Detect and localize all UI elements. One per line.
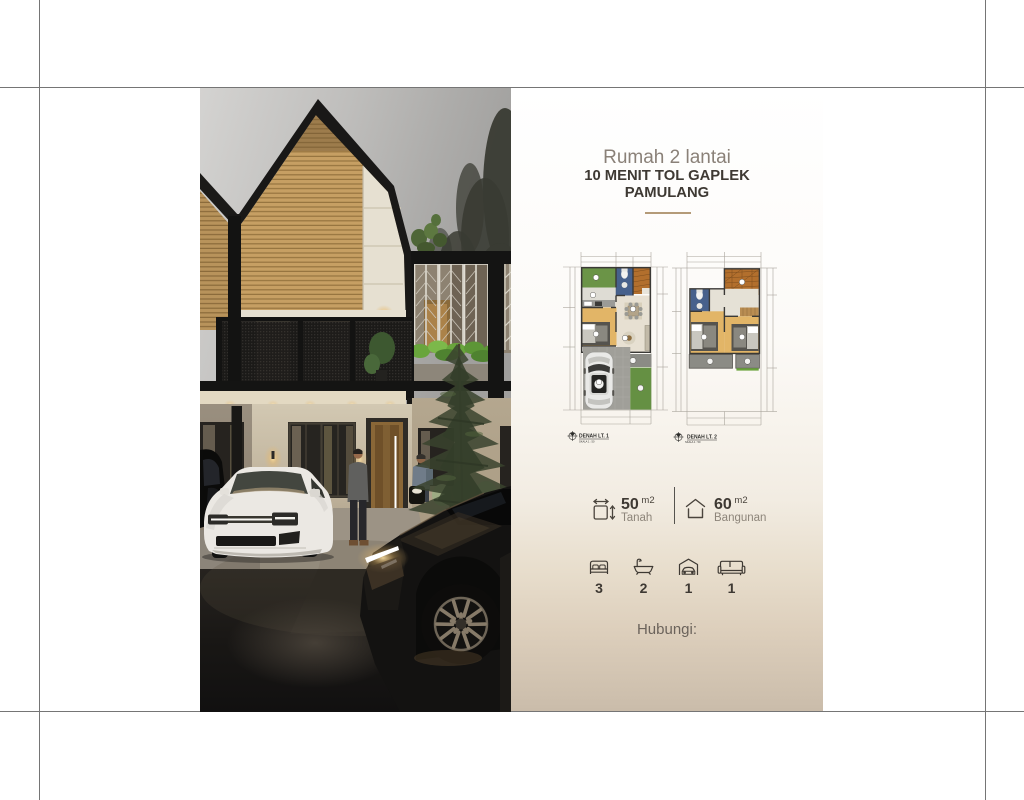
svg-text:SKALA 1 : 50: SKALA 1 : 50 xyxy=(685,440,701,443)
svg-text:DENAH LT. 2: DENAH LT. 2 xyxy=(687,435,717,441)
svg-text:DENAH LT. 1: DENAH LT. 1 xyxy=(579,434,609,440)
svg-text:SKALA 1 : 50: SKALA 1 : 50 xyxy=(579,440,595,443)
